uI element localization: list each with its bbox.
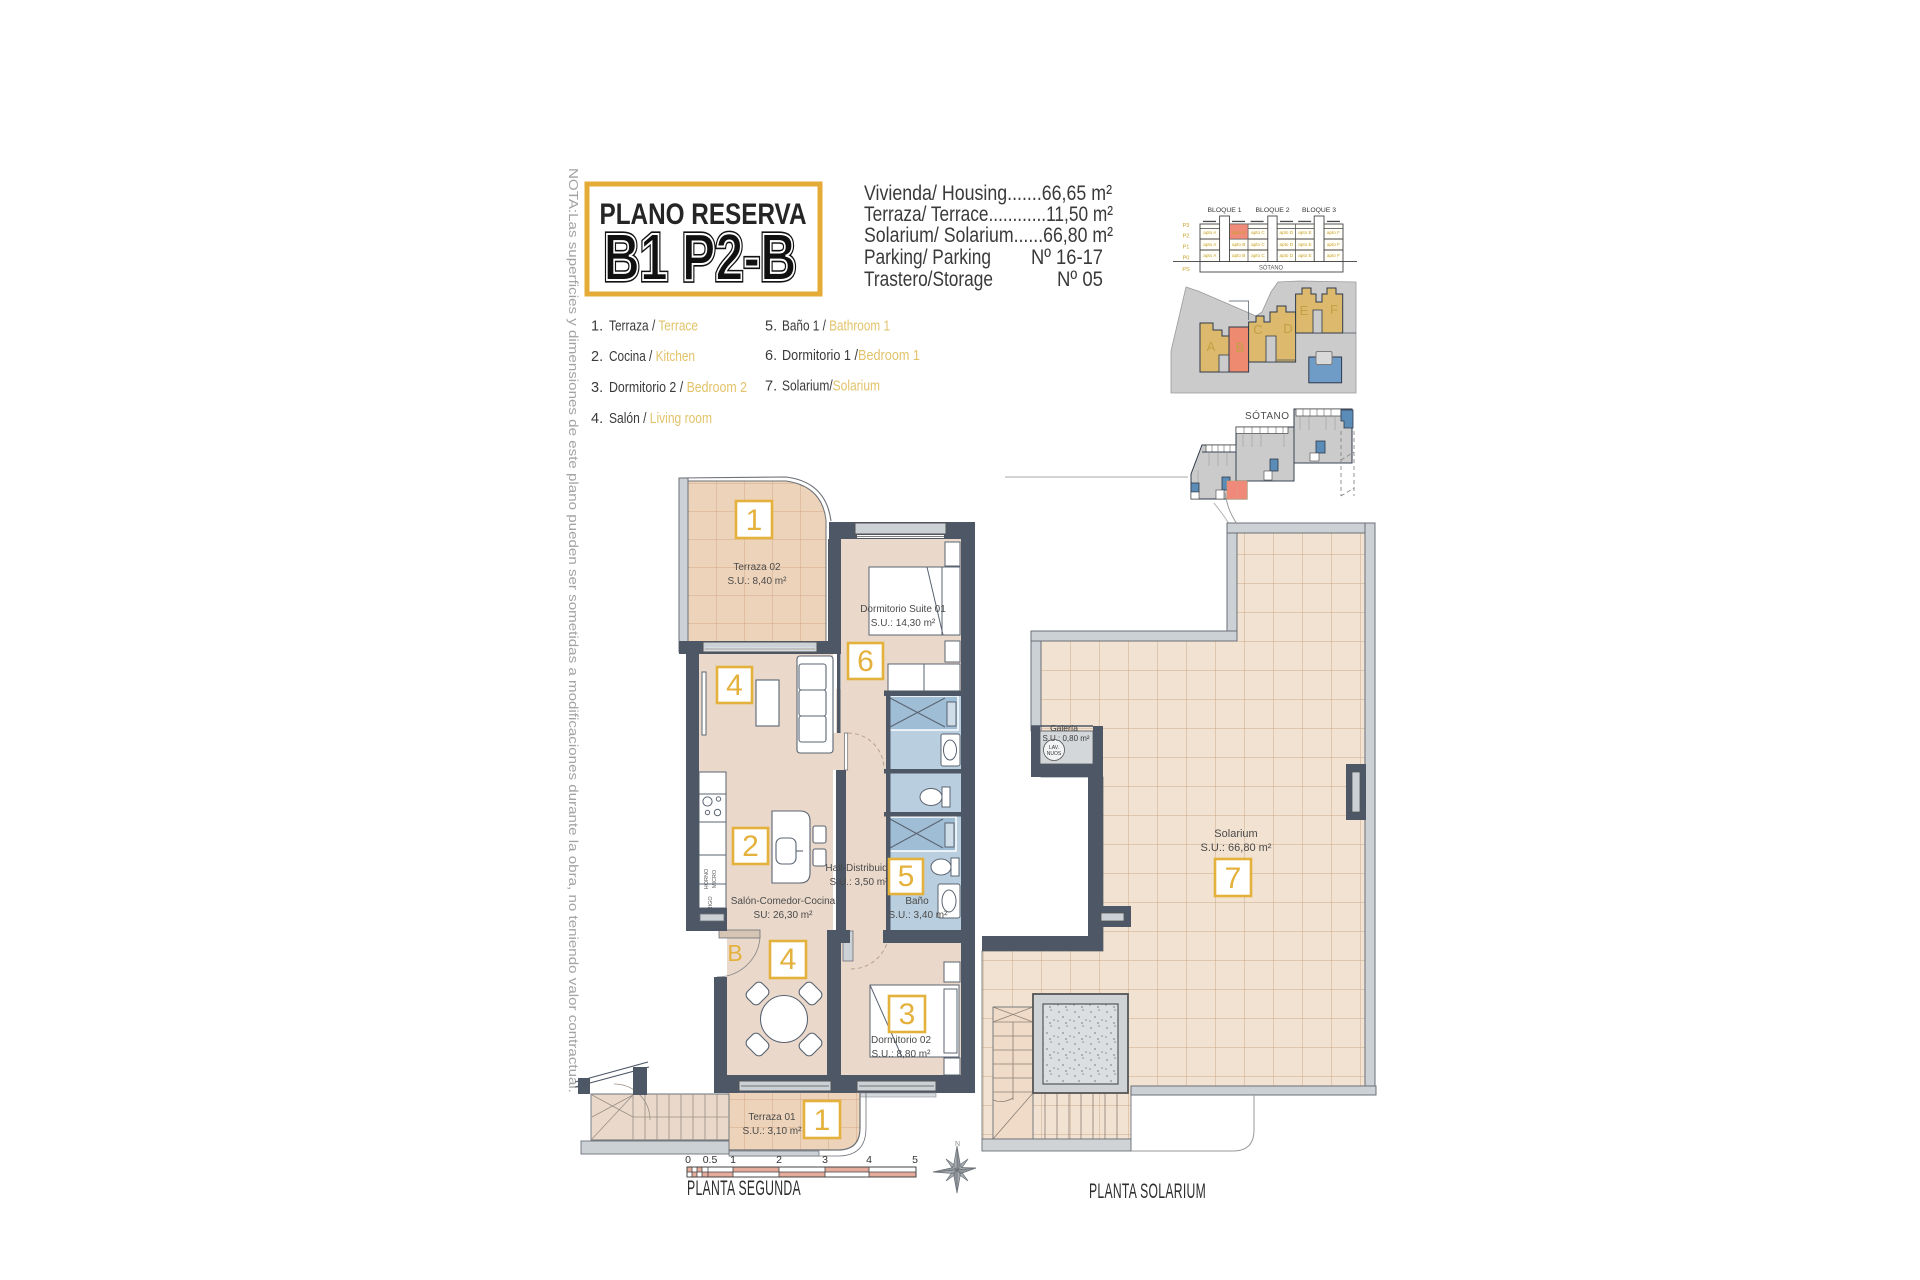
svg-text:Cocina / Kitchen: Cocina / Kitchen: [609, 349, 695, 365]
svg-text:Dormitorio 2 / Bedroom 2: Dormitorio 2 / Bedroom 2: [609, 380, 747, 396]
svg-text:S.U.: 66,80 m²: S.U.: 66,80 m²: [1201, 842, 1272, 854]
svg-text:6.: 6.: [765, 348, 777, 364]
svg-text:7: 7: [1225, 862, 1242, 895]
svg-text:N: N: [955, 1141, 960, 1148]
svg-text:4: 4: [726, 669, 743, 702]
svg-text:0: 0: [685, 1154, 691, 1166]
svg-text:BLOQUE 3: BLOQUE 3: [1302, 208, 1337, 214]
svg-text:Solarium: Solarium: [1214, 828, 1257, 840]
svg-text:apto B: apto B: [1232, 230, 1245, 235]
svg-text:3: 3: [822, 1154, 828, 1166]
svg-text:1: 1: [746, 504, 763, 537]
svg-text:apto C: apto C: [1251, 253, 1265, 258]
svg-text:1: 1: [730, 1154, 736, 1166]
svg-text:apto D: apto D: [1280, 230, 1294, 235]
svg-text:PLANTA SOLARIUM: PLANTA SOLARIUM: [1089, 1180, 1206, 1203]
svg-text:apto C: apto C: [1251, 230, 1265, 235]
svg-text:P0: P0: [1183, 256, 1190, 262]
svg-text:HORNO: HORNO: [704, 868, 710, 889]
svg-text:E: E: [1300, 303, 1309, 318]
svg-text:apto F: apto F: [1327, 230, 1340, 235]
svg-text:Galería: Galería: [1050, 723, 1078, 733]
svg-text:apto C: apto C: [1251, 242, 1265, 247]
svg-text:5.: 5.: [765, 319, 777, 335]
svg-text:2: 2: [776, 1154, 782, 1166]
svg-text:Baño 1 / Bathroom 1: Baño 1 / Bathroom 1: [782, 319, 890, 335]
svg-text:SU: 26,30 m²: SU: 26,30 m²: [754, 910, 814, 921]
svg-text:F: F: [1330, 302, 1338, 317]
svg-text:3.: 3.: [591, 380, 603, 396]
svg-text:4: 4: [866, 1154, 872, 1166]
svg-text:S.U.: 3,50 m²: S.U.: 3,50 m²: [830, 877, 890, 888]
svg-text:Dormitorio Suite 01: Dormitorio Suite 01: [860, 604, 946, 615]
svg-text:Terraza 02: Terraza 02: [733, 562, 781, 573]
svg-text:B1 P2-B: B1 P2-B: [604, 220, 797, 295]
svg-text:Hall-Distribuidor: Hall-Distribuidor: [825, 863, 897, 874]
svg-text:S.U.: 8,80 m²: S.U.: 8,80 m²: [872, 1049, 932, 1060]
svg-text:BLOQUE 2: BLOQUE 2: [1256, 208, 1291, 214]
svg-text:P2: P2: [1183, 234, 1190, 240]
svg-text:1.: 1.: [591, 319, 603, 335]
svg-text:NOTA:Las superficies y dimensi: NOTA:Las superficies y dimensiones de es…: [566, 168, 581, 1093]
svg-text:1: 1: [814, 1104, 831, 1137]
svg-text:apto E: apto E: [1298, 230, 1311, 235]
svg-text:2.: 2.: [591, 349, 603, 365]
svg-text:S.U.: 14,30 m²: S.U.: 14,30 m²: [871, 618, 936, 629]
svg-text:PLANTA SEGUNDA: PLANTA SEGUNDA: [687, 1177, 801, 1200]
svg-text:B: B: [1236, 340, 1245, 355]
svg-text:apto D: apto D: [1280, 242, 1294, 247]
svg-text:Dormitorio 1 /Bedroom 1: Dormitorio 1 /Bedroom 1: [782, 348, 920, 364]
svg-text:Baño: Baño: [905, 896, 929, 907]
svg-text:BLOQUE 1: BLOQUE 1: [1208, 208, 1243, 214]
svg-text:apto B: apto B: [1232, 253, 1245, 258]
svg-text:apto A: apto A: [1203, 253, 1217, 258]
svg-text:Salón-Comedor-Cocina: Salón-Comedor-Cocina: [731, 896, 836, 907]
svg-text:A: A: [1207, 339, 1216, 354]
svg-text:Nº 16-17: Nº 16-17: [1031, 245, 1103, 269]
svg-text:4.: 4.: [591, 411, 603, 427]
svg-text:apto B: apto B: [1232, 242, 1245, 247]
svg-text:S.U.: 8,40 m²: S.U.: 8,40 m²: [728, 576, 788, 587]
svg-text:S.U.: 3,40 m²: S.U.: 3,40 m²: [889, 910, 949, 921]
svg-text:Nº 05: Nº 05: [1057, 267, 1103, 291]
svg-text:S.U.: 3,10 m²: S.U.: 3,10 m²: [743, 1126, 803, 1137]
svg-text:apto A: apto A: [1203, 230, 1217, 235]
svg-text:NUOS: NUOS: [1047, 751, 1062, 757]
svg-text:4: 4: [780, 943, 797, 976]
svg-text:S.U.: 0,80 m²: S.U.: 0,80 m²: [1042, 734, 1089, 743]
svg-text:apto E: apto E: [1298, 242, 1311, 247]
svg-text:Trastero/Storage: Trastero/Storage: [864, 267, 993, 291]
svg-text:PS: PS: [1182, 267, 1190, 273]
svg-text:Terraza 01: Terraza 01: [748, 1112, 796, 1123]
svg-text:apto F: apto F: [1327, 253, 1340, 258]
svg-text:Dormitorio 02: Dormitorio 02: [871, 1035, 931, 1046]
svg-text:3: 3: [899, 998, 916, 1031]
svg-text:B: B: [727, 940, 742, 966]
svg-text:apto D: apto D: [1280, 253, 1294, 258]
svg-text:0.5: 0.5: [703, 1154, 718, 1166]
svg-text:2: 2: [742, 830, 759, 863]
svg-text:Parking/ Parking: Parking/ Parking: [864, 245, 991, 269]
svg-text:5: 5: [912, 1154, 918, 1166]
svg-text:Salón / Living room: Salón / Living room: [609, 411, 712, 427]
svg-text:P1: P1: [1183, 245, 1190, 251]
svg-text:apto F: apto F: [1327, 242, 1340, 247]
svg-text:Terraza / Terrace: Terraza / Terrace: [609, 319, 698, 335]
svg-text:Solarium/ Solarium......66,80: Solarium/ Solarium......66,80 m²: [864, 223, 1113, 247]
svg-text:6: 6: [857, 645, 874, 678]
svg-text:Solarium/Solarium: Solarium/Solarium: [782, 379, 880, 395]
svg-text:SÓTANO: SÓTANO: [1245, 409, 1289, 422]
svg-text:5: 5: [898, 860, 915, 893]
svg-text:SÓTANO: SÓTANO: [1259, 265, 1283, 272]
svg-text:P3: P3: [1183, 223, 1190, 229]
svg-text:C: C: [1253, 322, 1262, 337]
svg-text:apto A: apto A: [1203, 242, 1217, 247]
svg-text:7.: 7.: [765, 379, 777, 395]
svg-text:D: D: [1283, 321, 1292, 336]
svg-text:MICRO: MICRO: [712, 869, 718, 888]
svg-text:apto E: apto E: [1298, 253, 1311, 258]
